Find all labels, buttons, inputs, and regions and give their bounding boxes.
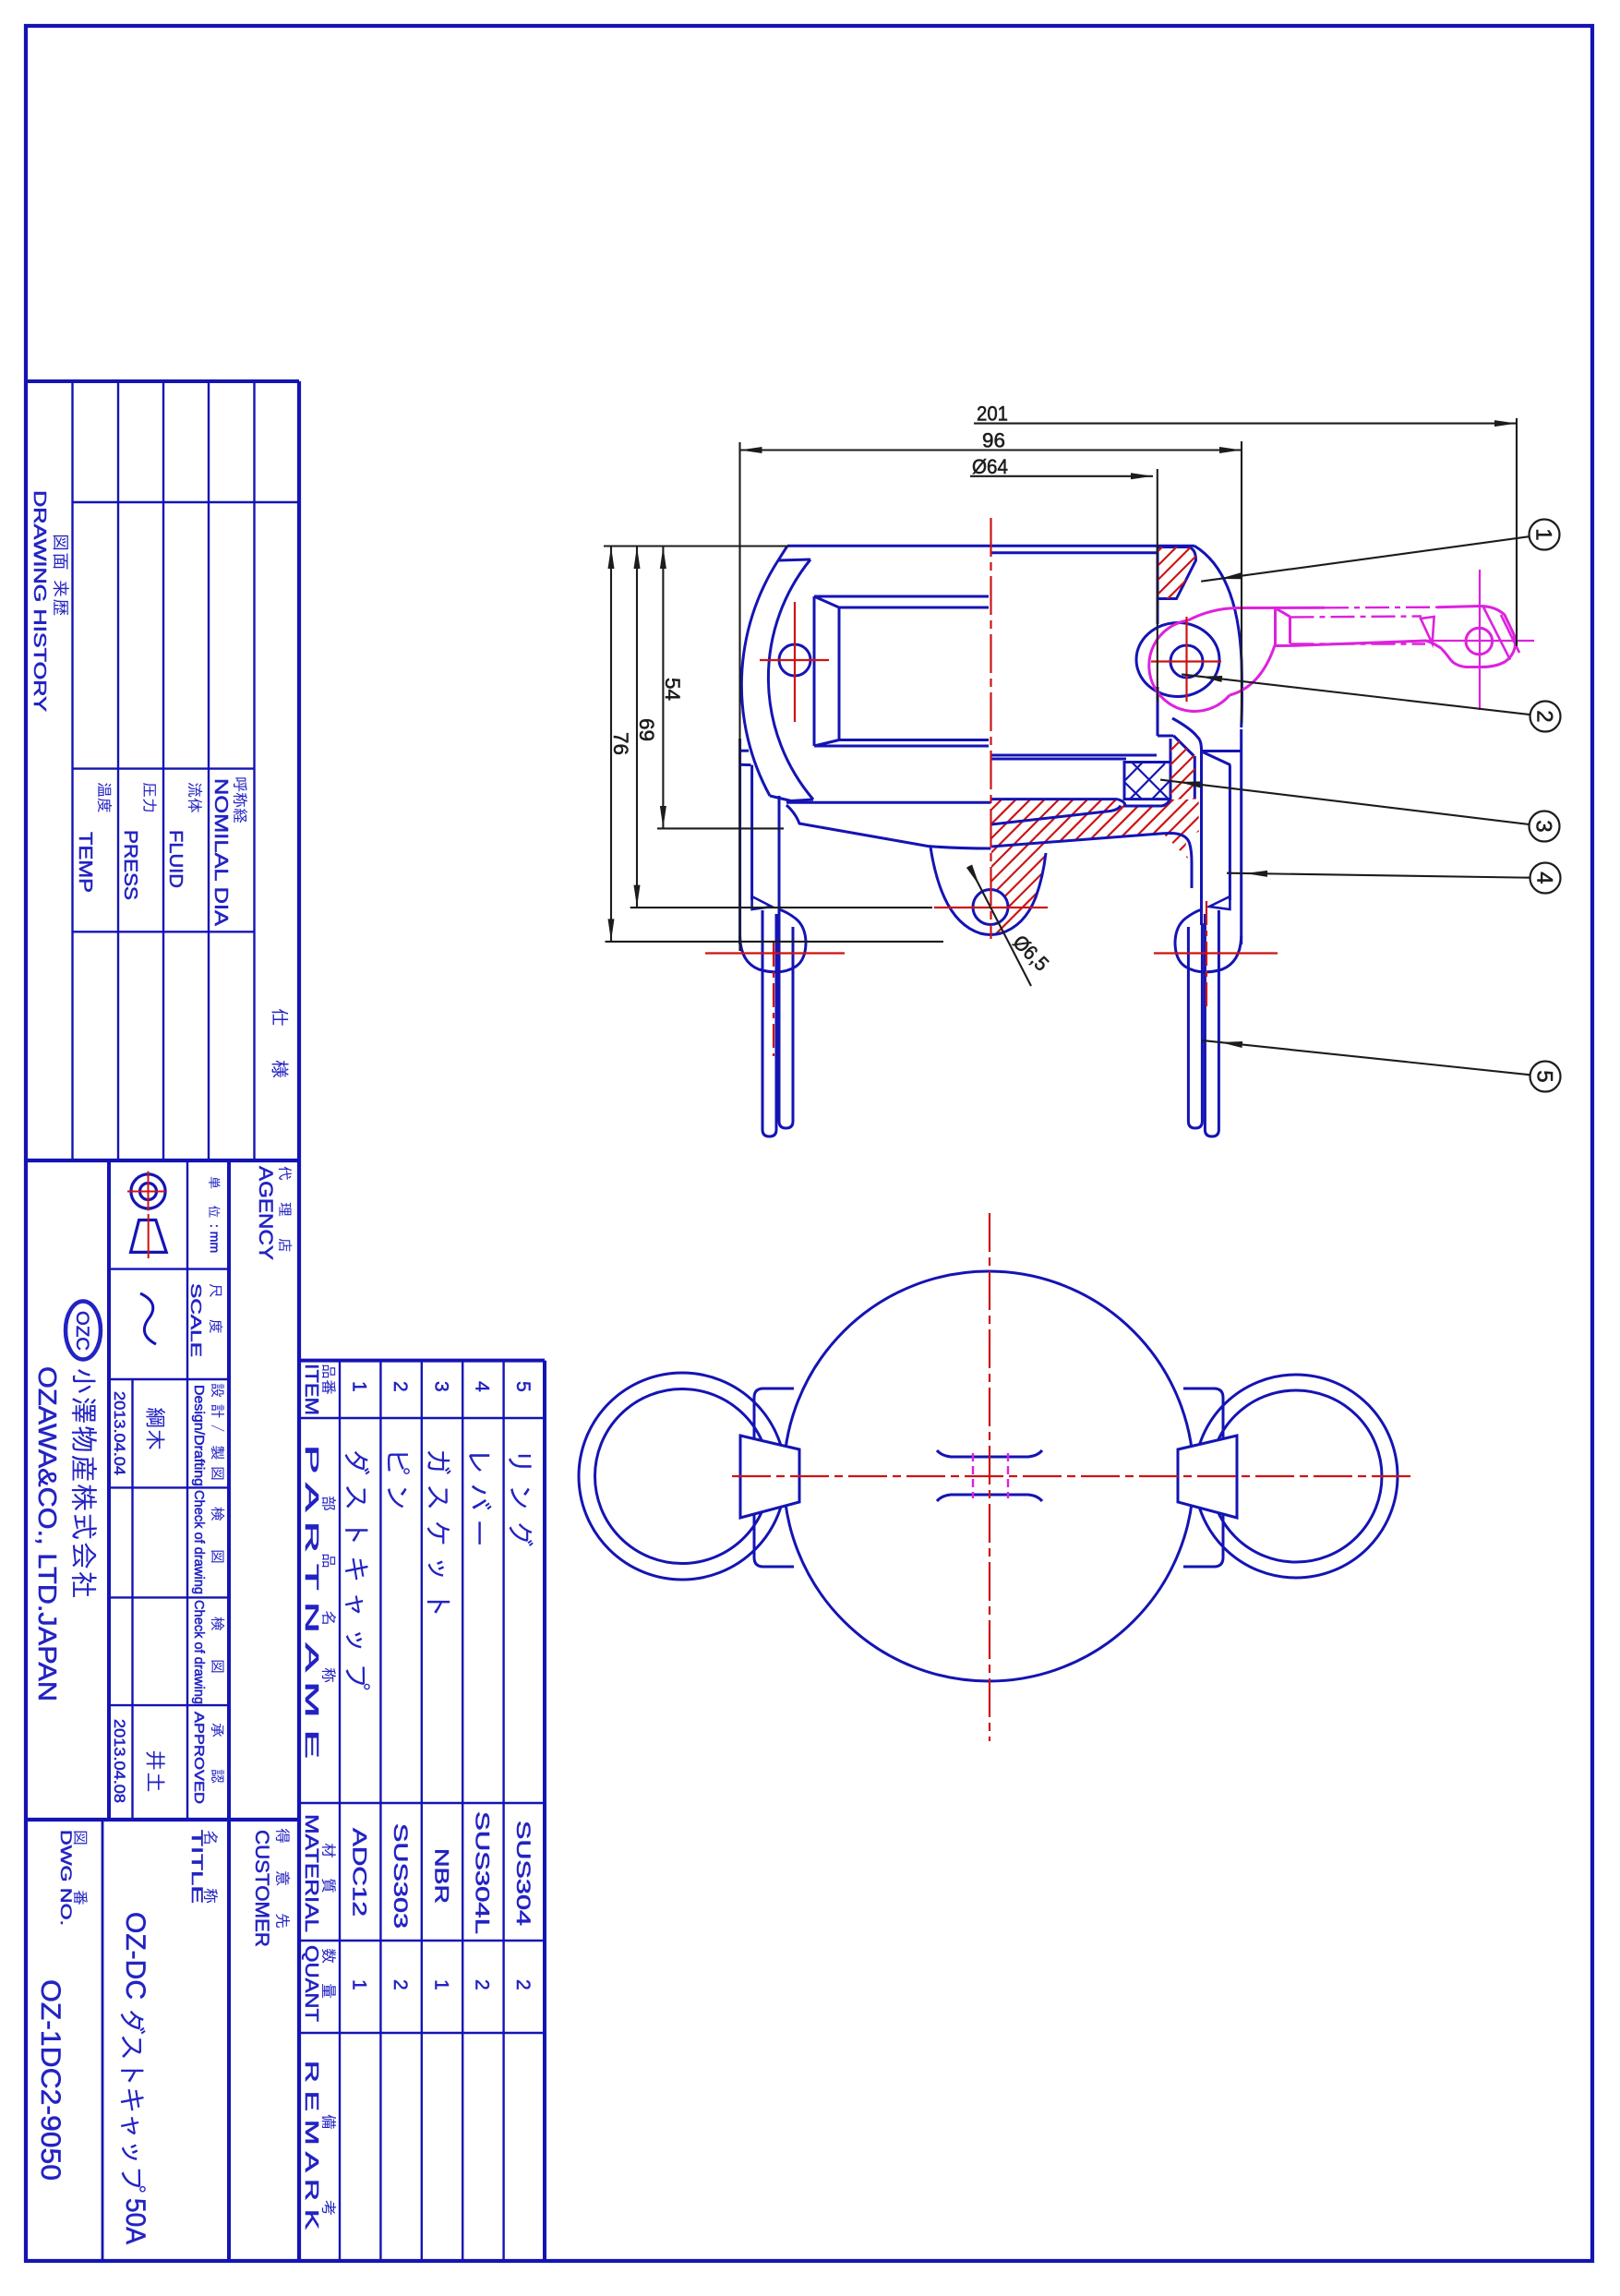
- svg-text:P A R T N A M E: P A R T N A M E: [301, 1445, 321, 1759]
- svg-text:ADC12: ADC12: [349, 1828, 370, 1917]
- svg-text:2013.04.08: 2013.04.08: [111, 1719, 127, 1803]
- svg-text:2: 2: [512, 1979, 534, 1990]
- svg-text:MATERIAL: MATERIAL: [301, 1814, 321, 1932]
- svg-text:CUSTOMER: CUSTOMER: [251, 1830, 272, 1947]
- svg-text:TEMP: TEMP: [75, 832, 95, 893]
- svg-text:Ø6,5: Ø6,5: [1008, 931, 1053, 976]
- svg-text:1: 1: [1531, 528, 1556, 540]
- svg-text:1: 1: [349, 1979, 370, 1990]
- svg-text:3: 3: [430, 1381, 451, 1392]
- svg-text:50A: 50A: [120, 2198, 150, 2244]
- svg-text:OZ-1DC2-9050: OZ-1DC2-9050: [35, 1979, 66, 2181]
- svg-text:SUS304: SUS304: [512, 1821, 534, 1926]
- svg-text:201: 201: [977, 403, 1008, 426]
- svg-text:OZAWA&CO., LTD.JAPAN: OZAWA&CO., LTD.JAPAN: [33, 1366, 62, 1701]
- svg-text:1: 1: [430, 1979, 451, 1990]
- svg-text:NBR: NBR: [430, 1848, 451, 1904]
- svg-text:Check of drawing: Check of drawing: [191, 1600, 206, 1704]
- svg-text:OZ-DC: OZ-DC: [120, 1912, 150, 2000]
- svg-text:QUANT: QUANT: [301, 1945, 321, 2022]
- svg-text:54: 54: [661, 678, 684, 701]
- svg-text:2: 2: [472, 1979, 493, 1990]
- svg-text:R E M A R K: R E M A R K: [301, 2061, 321, 2230]
- svg-text:2: 2: [390, 1979, 411, 1990]
- svg-text:DWG NO.: DWG NO.: [57, 1830, 75, 1926]
- svg-text:ITEM: ITEM: [301, 1364, 321, 1415]
- svg-text:APPROVED: APPROVED: [191, 1712, 206, 1804]
- svg-text:76: 76: [609, 732, 632, 755]
- svg-text:4: 4: [472, 1381, 493, 1392]
- svg-text:Design/Drafting: Design/Drafting: [191, 1385, 206, 1486]
- svg-text:4: 4: [1532, 872, 1557, 884]
- svg-text:DRAWING HISTORY: DRAWING HISTORY: [30, 490, 49, 712]
- svg-text:1: 1: [349, 1381, 370, 1392]
- svg-text:2013.04.04: 2013.04.04: [111, 1391, 127, 1475]
- svg-text:2: 2: [1532, 710, 1557, 722]
- svg-text:5: 5: [1532, 1070, 1557, 1082]
- svg-text:TITLE: TITLE: [188, 1830, 206, 1904]
- svg-text:SUS303: SUS303: [390, 1823, 411, 1929]
- svg-text:PRESS: PRESS: [120, 830, 140, 900]
- svg-text:3: 3: [1531, 820, 1556, 832]
- svg-text:SCALE: SCALE: [187, 1283, 203, 1357]
- svg-text:Ø64: Ø64: [972, 455, 1008, 478]
- svg-text:96: 96: [982, 429, 1005, 452]
- svg-text:SUS304L: SUS304L: [472, 1811, 493, 1934]
- svg-text:FLUID: FLUID: [165, 830, 186, 888]
- svg-text:: mm: : mm: [208, 1224, 222, 1253]
- svg-text:Check of drawing: Check of drawing: [191, 1490, 206, 1594]
- svg-text:NOMILAL DIA: NOMILAL DIA: [210, 778, 231, 927]
- svg-text:5: 5: [512, 1381, 534, 1392]
- svg-text:69: 69: [635, 718, 658, 741]
- svg-text:2: 2: [390, 1381, 411, 1392]
- svg-text:OZC: OZC: [72, 1311, 91, 1351]
- svg-text:AGENCY: AGENCY: [255, 1166, 276, 1260]
